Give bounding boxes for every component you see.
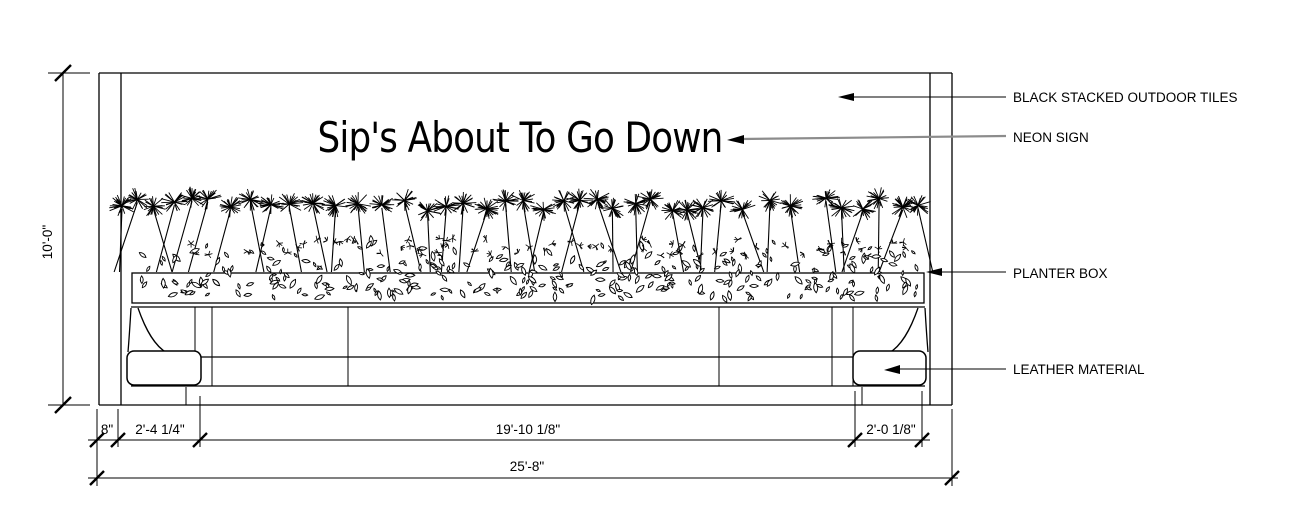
backrest-right-curve: [889, 308, 918, 353]
dim-center-label: 19'-10 1/8": [496, 422, 561, 437]
backrest-left-curve: [138, 308, 167, 353]
banquette-bench: [127, 307, 928, 405]
leader-arrow-icon: [838, 93, 854, 101]
callout-neon-label: NEON SIGN: [1013, 130, 1089, 145]
callout-planter: PLANTER BOX: [926, 266, 1108, 281]
flower-heads: [109, 187, 930, 221]
elevation-sheet: Sip's About To Go Down BLACK STACKED O: [0, 0, 1293, 510]
callout-leather-label: LEATHER MATERIAL: [1013, 362, 1145, 377]
left-seat-cushion: [127, 351, 201, 385]
dim-overall-label: 25'-8": [510, 459, 545, 474]
callout-planter-label: PLANTER BOX: [1013, 266, 1108, 281]
leader-arrow-icon: [727, 135, 744, 144]
callout-neon-sign: NEON SIGN: [727, 130, 1089, 145]
backrest-left-edge: [128, 308, 131, 352]
dim-wall-label: 8": [101, 422, 114, 437]
neon-sign-text: Sip's About To Go Down: [318, 113, 723, 162]
callout-tiles-label: BLACK STACKED OUTDOOR TILES: [1013, 90, 1238, 105]
dim-height-label: 10'-0": [40, 225, 55, 260]
elevation-drawing: Sip's About To Go Down BLACK STACKED O: [0, 0, 1293, 510]
callout-tiles: BLACK STACKED OUTDOOR TILES: [838, 90, 1238, 105]
dim-right-label: 2'-0 1/8": [866, 422, 916, 437]
leader-arrow-icon: [926, 268, 942, 276]
right-seat-cushion: [853, 351, 926, 385]
neon-leader-line: [741, 136, 1006, 139]
dimension-height: 10'-0": [40, 65, 90, 413]
dimension-overall: 25'-8": [88, 459, 959, 485]
backrest-right-edge: [925, 308, 928, 352]
dim-left-label: 2'-4 1/4": [135, 422, 185, 437]
